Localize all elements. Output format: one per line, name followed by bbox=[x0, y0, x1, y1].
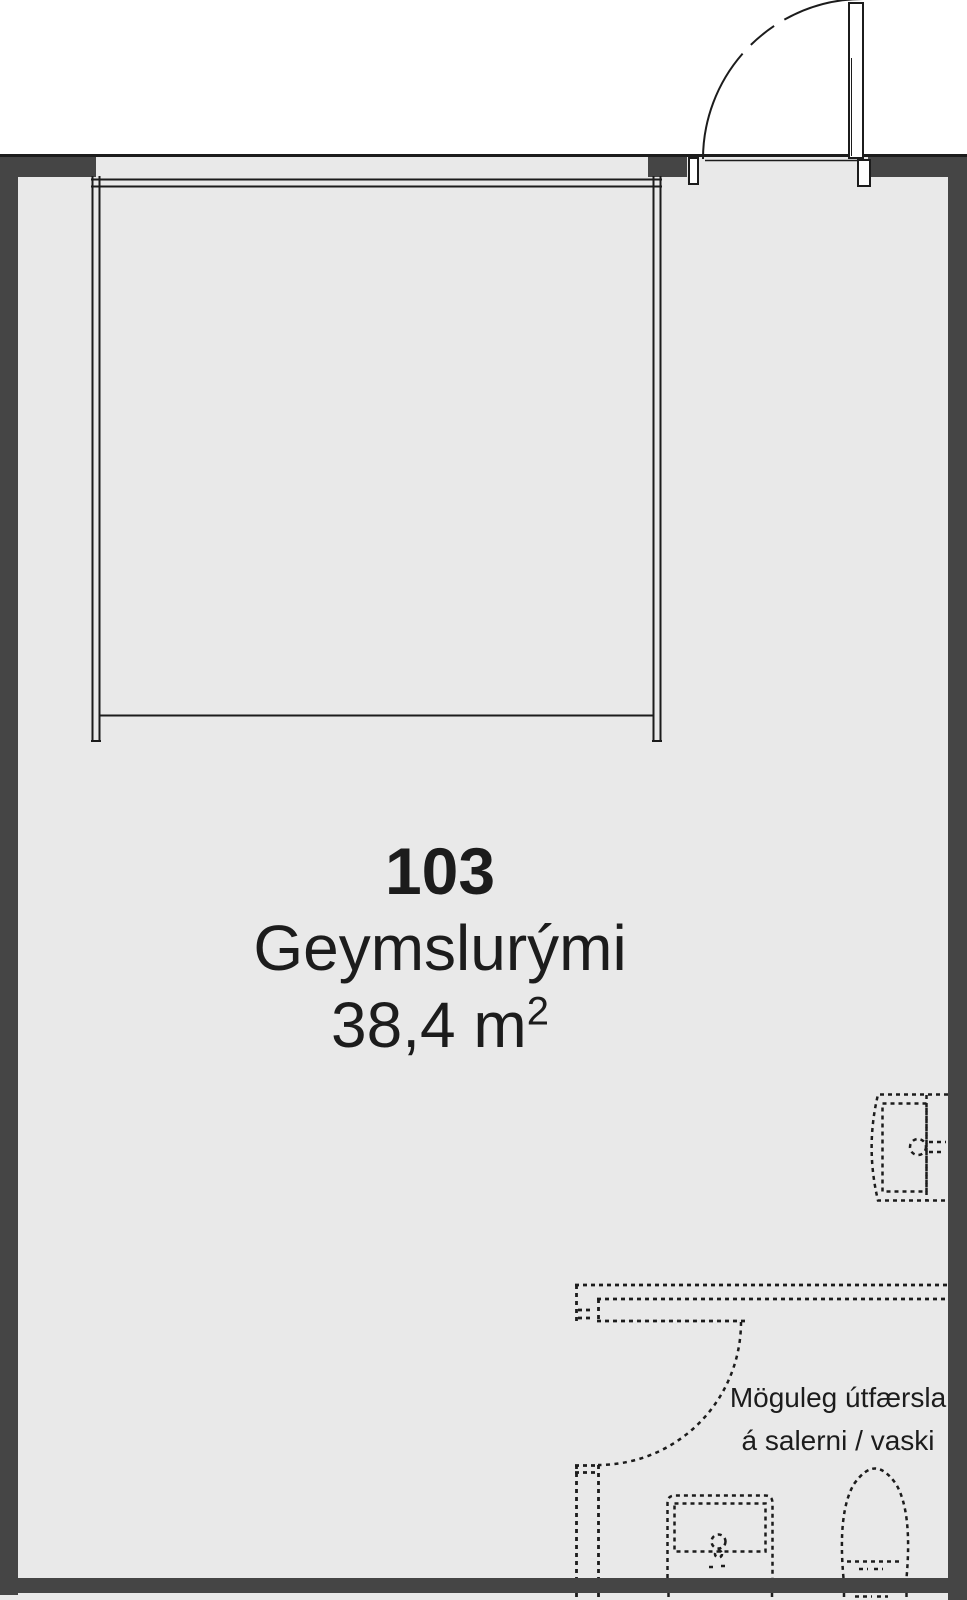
storage-area-outline bbox=[91, 176, 662, 741]
entry-door bbox=[689, 0, 870, 186]
bathroom-annotation-line1: Möguleg útfærsla bbox=[688, 1376, 967, 1419]
room-number: 103 bbox=[140, 833, 740, 910]
wall-sink-drain bbox=[910, 1139, 926, 1155]
toilet-fixture bbox=[842, 1469, 908, 1600]
door-jamb-right bbox=[858, 160, 870, 186]
bathroom-sink-fixture bbox=[668, 1496, 773, 1600]
room-name: Geymslurými bbox=[140, 910, 740, 987]
bathroom-sink-drain bbox=[712, 1535, 726, 1549]
room-area: 38,4 m2 bbox=[140, 987, 740, 1064]
room-label: 103 Geymslurými 38,4 m2 bbox=[140, 833, 740, 1064]
floor-plan: 103 Geymslurými 38,4 m2 Möguleg útfærsla… bbox=[0, 0, 967, 1600]
linework-overlay bbox=[0, 0, 967, 1600]
entry-door-swing-arc bbox=[703, 0, 863, 159]
bathroom-annotation-line2: á salerni / vaski bbox=[688, 1419, 967, 1462]
room-area-superscript: 2 bbox=[527, 990, 549, 1034]
wall-sink-fixture bbox=[872, 1095, 948, 1201]
door-jamb-left bbox=[689, 158, 698, 184]
bathroom-annotation: Möguleg útfærsla á salerni / vaski bbox=[688, 1376, 967, 1462]
